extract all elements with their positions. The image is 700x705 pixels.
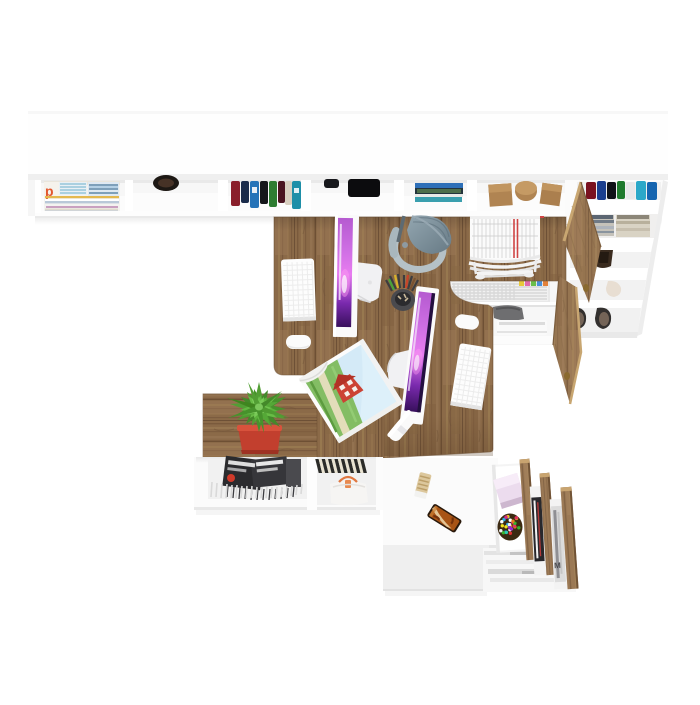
svg-text:M: M (554, 561, 561, 570)
